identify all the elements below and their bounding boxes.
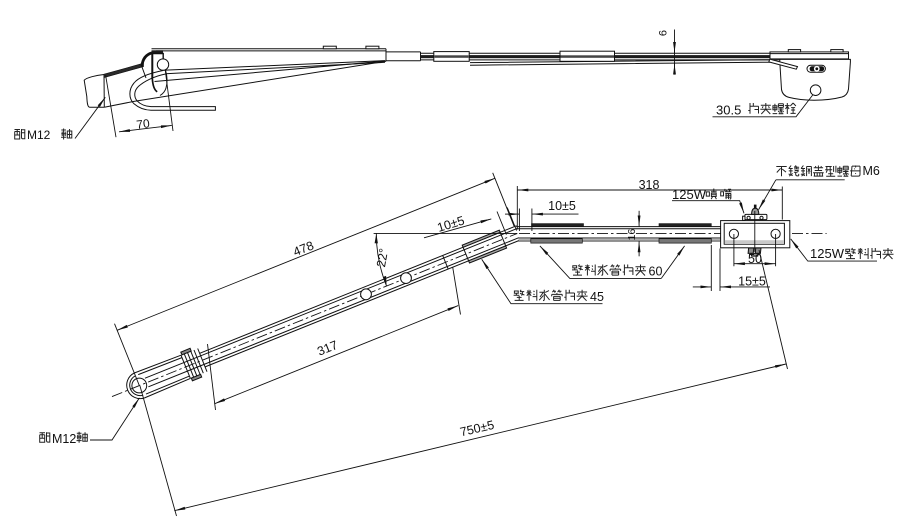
svg-text:30.5: 30.5 — [716, 103, 741, 118]
svg-text:45: 45 — [590, 290, 604, 304]
svg-text:60: 60 — [649, 265, 663, 279]
svg-text:M6: M6 — [863, 164, 880, 178]
svg-text:70: 70 — [136, 116, 151, 132]
svg-text:16: 16 — [626, 229, 638, 241]
svg-text:15±5: 15±5 — [738, 274, 766, 288]
svg-text:M12: M12 — [27, 128, 51, 142]
svg-text:750±5: 750±5 — [459, 418, 496, 439]
svg-text:125W: 125W — [810, 246, 845, 261]
svg-text:318: 318 — [639, 178, 660, 192]
svg-text:10±5: 10±5 — [436, 213, 467, 235]
svg-text:317: 317 — [315, 338, 340, 359]
svg-text:50: 50 — [748, 252, 762, 266]
svg-text:478: 478 — [291, 238, 316, 259]
svg-text:6: 6 — [658, 30, 670, 36]
svg-text:125W: 125W — [672, 187, 707, 202]
svg-text:10±5: 10±5 — [548, 199, 576, 213]
svg-text:22°: 22° — [374, 247, 391, 268]
svg-text:M12: M12 — [52, 432, 76, 446]
